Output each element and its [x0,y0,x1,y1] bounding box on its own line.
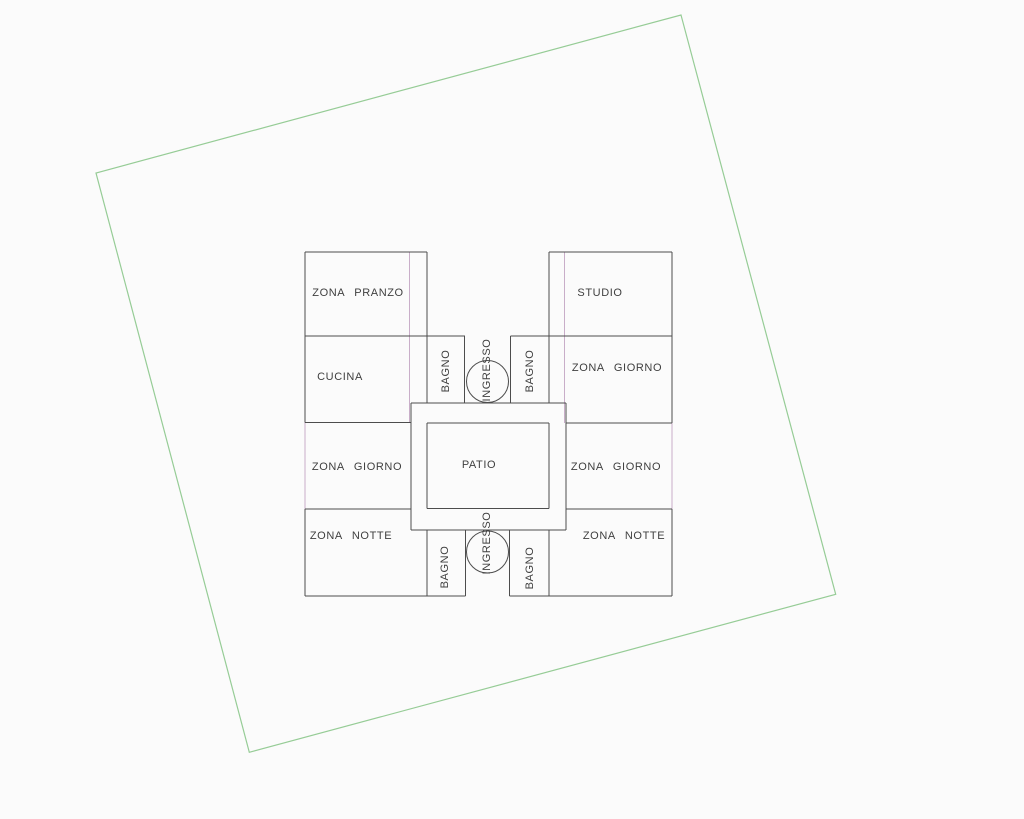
room-label-zona-notte-right: ZONA NOTTE [583,530,665,542]
site-boundary [96,15,836,752]
room-label-bagno-bottom-right: BAGNO [524,547,536,590]
room-label-patio: PATIO [462,459,496,471]
site-boundary-layer [96,15,836,752]
room-label-zona-giorno-upper-right: ZONA GIORNO [572,362,662,374]
plan-svg: ZONA PRANZOSTUDIOCUCINABAGNOINGRESSOBAGN… [0,0,1024,819]
room-label-zona-notte-left: ZONA NOTTE [310,530,392,542]
room-label-ingresso-bottom: INGRESSO [481,512,493,575]
room-label-zona-giorno-right: ZONA GIORNO [571,461,661,473]
room-label-ingresso-top: INGRESSO [481,339,493,402]
room-label-bagno-bottom-left: BAGNO [439,546,451,589]
room-label-bagno-top-left: BAGNO [440,350,452,393]
room-label-zona-giorno-left: ZONA GIORNO [312,461,402,473]
label-layer: ZONA PRANZOSTUDIOCUCINABAGNOINGRESSOBAGN… [310,287,665,589]
cad-viewport: ZONA PRANZOSTUDIOCUCINABAGNOINGRESSOBAGN… [0,0,1024,819]
room-label-studio: STUDIO [577,287,622,299]
room-label-bagno-top-right: BAGNO [524,350,536,393]
room-label-cucina: CUCINA [317,371,363,383]
room-label-zona-pranzo: ZONA PRANZO [312,287,403,299]
